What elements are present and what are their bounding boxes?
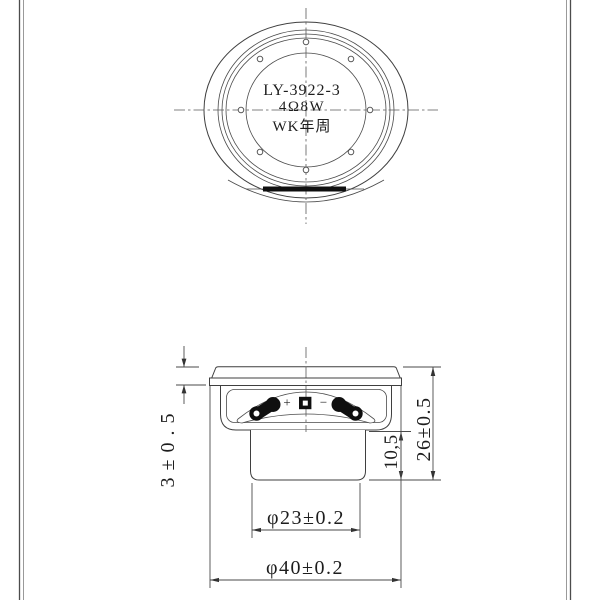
impedance-power-label: 4Ω8W — [279, 99, 325, 115]
minus-polarity-label: − — [320, 395, 327, 410]
mounting-hole — [348, 149, 354, 155]
dim-magnet-height: 10,5 — [369, 432, 411, 481]
dim-magnet-height-label: 10,5 — [381, 434, 402, 469]
batch-mark-label: WK年周 — [273, 118, 332, 135]
mounting-hole — [303, 167, 309, 173]
dim-frame-diameter-label: φ40±0.2 — [266, 557, 344, 579]
terminal-left-hole — [254, 411, 260, 417]
model-number-label: LY-3922-3 — [263, 82, 341, 99]
arrowhead — [182, 359, 187, 367]
arrowhead — [431, 367, 436, 376]
center-connector-hole — [303, 401, 308, 406]
magnet-cylinder — [251, 430, 366, 480]
dim-total-height-label: 26±0.5 — [413, 397, 435, 462]
mounting-hole — [257, 56, 263, 62]
plus-polarity-label: + — [283, 395, 290, 410]
dim-flange-height-label: 3±0.5 — [157, 407, 179, 488]
terminal-right-pad — [332, 397, 347, 412]
arrowhead — [252, 528, 261, 532]
terminal-strip-top — [263, 187, 346, 192]
arrowhead — [392, 578, 401, 582]
mounting-hole — [303, 39, 309, 45]
drawing-sheet: LY-3922-3 4Ω8W WK年周 — [0, 0, 600, 600]
arrowhead — [431, 471, 436, 480]
dim-flange-height: 3±0.5 — [157, 346, 206, 487]
mounting-rim — [210, 378, 402, 386]
side-view: + − — [210, 347, 402, 480]
speaker-technical-drawing: LY-3922-3 4Ω8W WK年周 — [0, 0, 600, 600]
dim-magnet-diameter: φ23±0.2 — [252, 483, 360, 538]
mounting-hole — [257, 149, 263, 155]
mounting-hole — [348, 56, 354, 62]
top-view: LY-3922-3 4Ω8W WK年周 — [174, 8, 438, 224]
terminal-left-pad — [266, 397, 281, 412]
terminal-right-hole — [353, 411, 359, 417]
mounting-hole — [238, 107, 244, 113]
arrowhead — [351, 528, 360, 532]
arrowhead — [210, 578, 219, 582]
arrowhead — [182, 385, 187, 393]
mounting-hole — [367, 107, 373, 113]
dim-magnet-diameter-label: φ23±0.2 — [267, 507, 345, 529]
